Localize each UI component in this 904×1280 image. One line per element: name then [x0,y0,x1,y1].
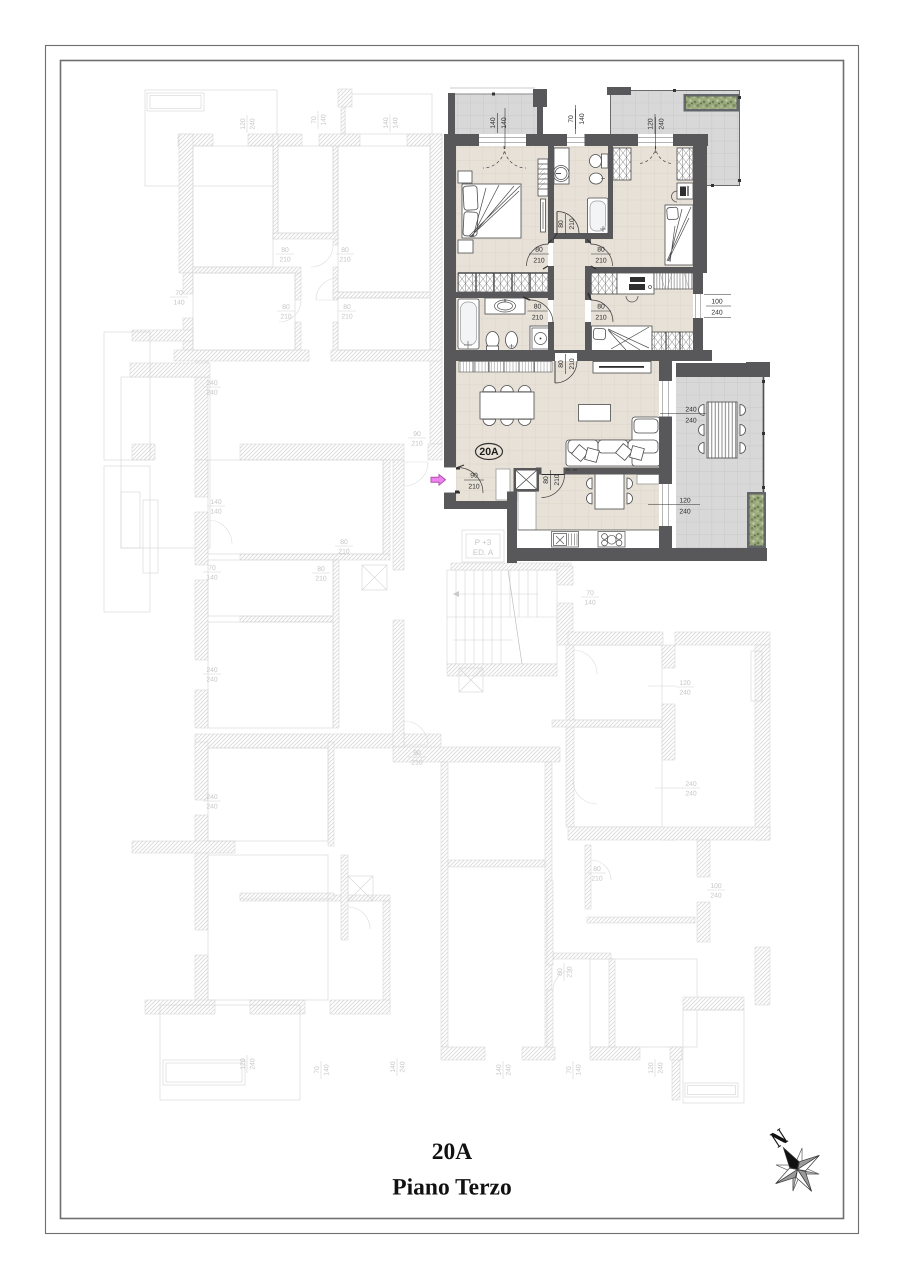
svg-text:240: 240 [250,1058,257,1070]
svg-text:240: 240 [206,804,218,811]
svg-text:140: 140 [501,117,508,129]
svg-text:240: 240 [685,791,697,798]
svg-text:120: 120 [240,1058,247,1070]
svg-text:240: 240 [685,407,697,414]
svg-text:100: 100 [711,299,723,306]
svg-text:210: 210 [533,258,545,265]
svg-text:210: 210 [338,549,350,556]
svg-text:240: 240 [206,667,218,674]
svg-text:80: 80 [317,566,325,573]
svg-text:80: 80 [282,304,290,311]
svg-text:20A: 20A [432,1139,473,1165]
svg-text:140: 140 [210,509,222,516]
svg-text:70: 70 [586,590,594,597]
svg-text:210: 210 [567,966,574,978]
svg-text:240: 240 [206,390,218,397]
svg-text:240: 240 [206,380,218,387]
svg-text:140: 140 [579,113,586,125]
svg-text:80: 80 [340,539,348,546]
svg-text:70: 70 [314,1066,321,1074]
svg-text:210: 210 [591,876,603,883]
svg-text:240: 240 [679,690,691,697]
svg-text:70: 70 [568,115,575,123]
svg-text:210: 210 [341,314,353,321]
svg-text:210: 210 [554,474,561,486]
svg-text:140: 140 [173,300,185,307]
svg-text:240: 240 [710,893,722,900]
svg-text:240: 240 [685,781,697,788]
svg-text:70: 70 [208,565,216,572]
svg-text:120: 120 [240,118,247,130]
svg-text:80: 80 [597,247,605,254]
svg-text:80: 80 [558,360,565,368]
svg-text:70: 70 [175,290,183,297]
svg-text:80: 80 [597,304,605,311]
svg-text:120: 120 [648,118,655,130]
svg-text:140: 140 [496,1064,503,1076]
svg-text:80: 80 [543,476,550,484]
svg-text:70: 70 [311,116,318,124]
svg-text:140: 140 [324,1064,331,1076]
svg-text:80: 80 [281,247,289,254]
svg-text:90: 90 [413,750,421,757]
svg-text:240: 240 [711,310,723,317]
svg-text:80: 80 [558,220,565,228]
svg-text:210: 210 [532,315,544,322]
svg-text:P +3: P +3 [475,538,492,547]
svg-text:140: 140 [584,600,596,607]
svg-text:210: 210 [569,218,576,230]
svg-text:80: 80 [534,304,542,311]
svg-text:210: 210 [339,257,351,264]
svg-text:80: 80 [535,247,543,254]
svg-text:140: 140 [210,499,222,506]
svg-text:240: 240 [206,794,218,801]
svg-text:210: 210 [280,314,292,321]
svg-text:240: 240 [658,1062,665,1074]
svg-text:210: 210 [411,760,423,767]
svg-text:90: 90 [470,473,478,480]
svg-text:210: 210 [595,315,607,322]
svg-text:140: 140 [383,117,390,129]
svg-text:80: 80 [341,247,349,254]
svg-text:140: 140 [390,1061,397,1073]
svg-text:210: 210 [279,257,291,264]
svg-text:80: 80 [343,304,351,311]
svg-text:240: 240 [206,677,218,684]
svg-text:ED. A: ED. A [473,548,494,557]
svg-text:240: 240 [506,1064,513,1076]
svg-text:120: 120 [679,498,691,505]
svg-text:210: 210 [315,576,327,583]
svg-text:140: 140 [490,117,497,129]
svg-text:210: 210 [411,441,423,448]
svg-text:120: 120 [679,680,691,687]
svg-text:240: 240 [685,418,697,425]
svg-text:90: 90 [413,431,421,438]
svg-text:210: 210 [468,484,480,491]
svg-text:240: 240 [400,1061,407,1073]
svg-text:20A: 20A [479,446,499,458]
svg-text:70: 70 [566,1066,573,1074]
svg-text:210: 210 [569,358,576,370]
svg-text:Piano Terzo: Piano Terzo [392,1175,511,1201]
svg-text:210: 210 [595,258,607,265]
svg-text:100: 100 [710,883,722,890]
svg-text:140: 140 [321,114,328,126]
svg-text:140: 140 [393,117,400,129]
svg-text:240: 240 [659,118,666,130]
svg-text:240: 240 [679,509,691,516]
svg-text:80: 80 [593,866,601,873]
svg-text:140: 140 [576,1064,583,1076]
svg-text:140: 140 [206,575,218,582]
svg-text:120: 120 [648,1062,655,1074]
svg-text:240: 240 [250,118,257,130]
